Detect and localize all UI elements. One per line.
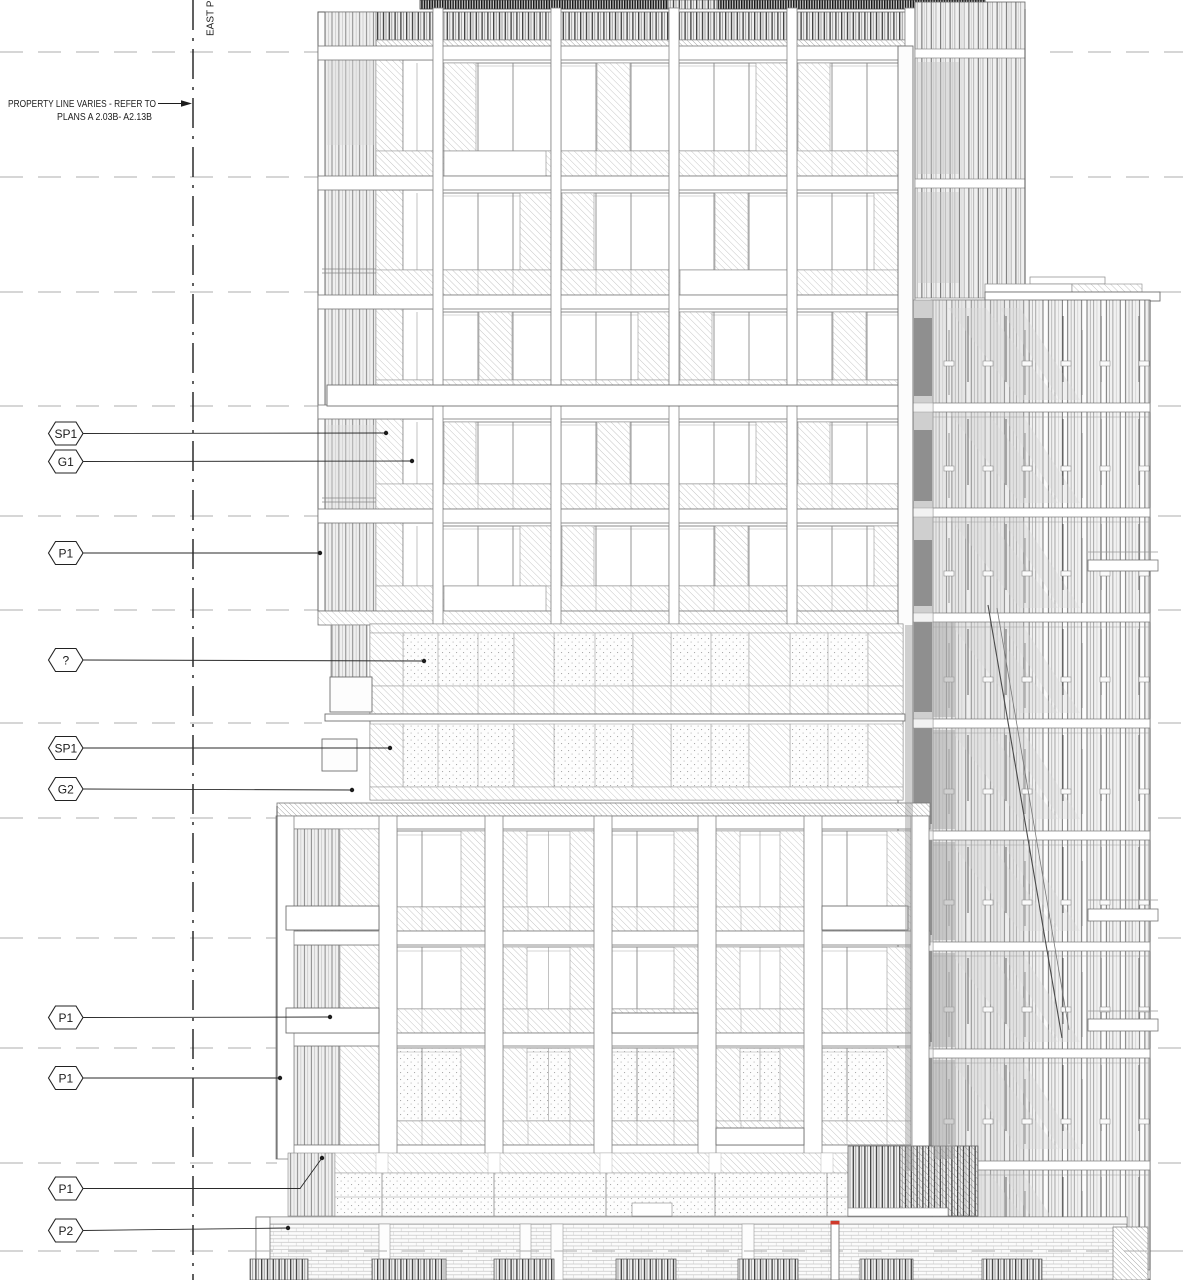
svg-text:P1: P1 (58, 1071, 73, 1085)
svg-text:PLANS A 2.03B- A2.13B: PLANS A 2.03B- A2.13B (57, 112, 152, 123)
svg-text:SP1: SP1 (54, 741, 77, 755)
svg-text:G2: G2 (58, 782, 74, 796)
svg-text:P1: P1 (58, 1182, 73, 1196)
svg-text:G1: G1 (58, 455, 74, 469)
svg-text:PROPERTY LINE VARIES - REFER T: PROPERTY LINE VARIES - REFER TO (8, 99, 156, 110)
svg-text:P2: P2 (58, 1224, 73, 1238)
svg-text:SP1: SP1 (54, 427, 77, 441)
svg-text:P1: P1 (58, 546, 73, 560)
svg-text:P1: P1 (58, 1011, 73, 1025)
svg-text:EAST PROPERTY LINE: EAST PROPERTY LINE (206, 0, 217, 36)
svg-text:?: ? (62, 653, 69, 667)
